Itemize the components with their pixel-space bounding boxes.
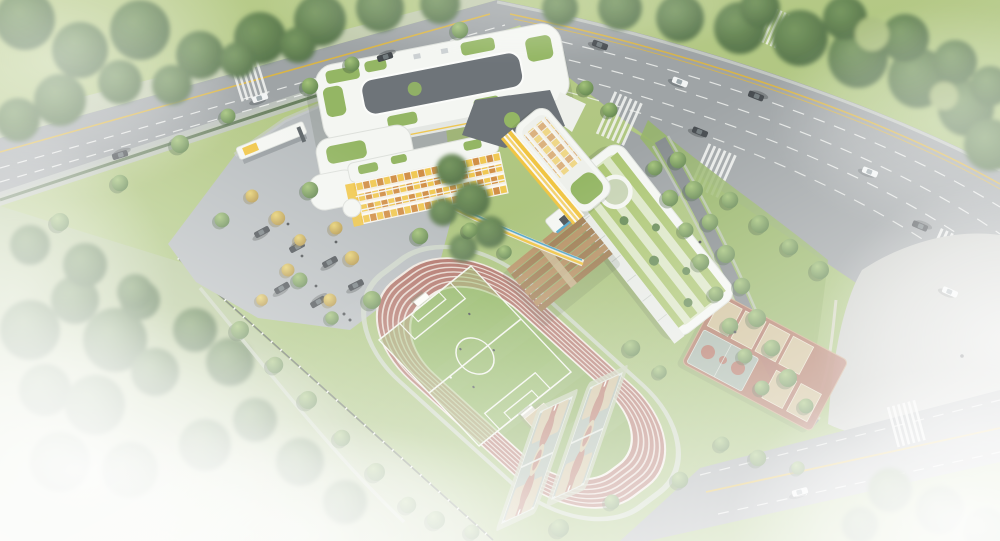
mist-overlay (0, 0, 1000, 541)
rendering-canvas: Aerial rendering of a school campus: whi… (0, 0, 1000, 541)
campus-aerial-rendering: Aerial rendering of a school campus: whi… (0, 0, 1000, 541)
